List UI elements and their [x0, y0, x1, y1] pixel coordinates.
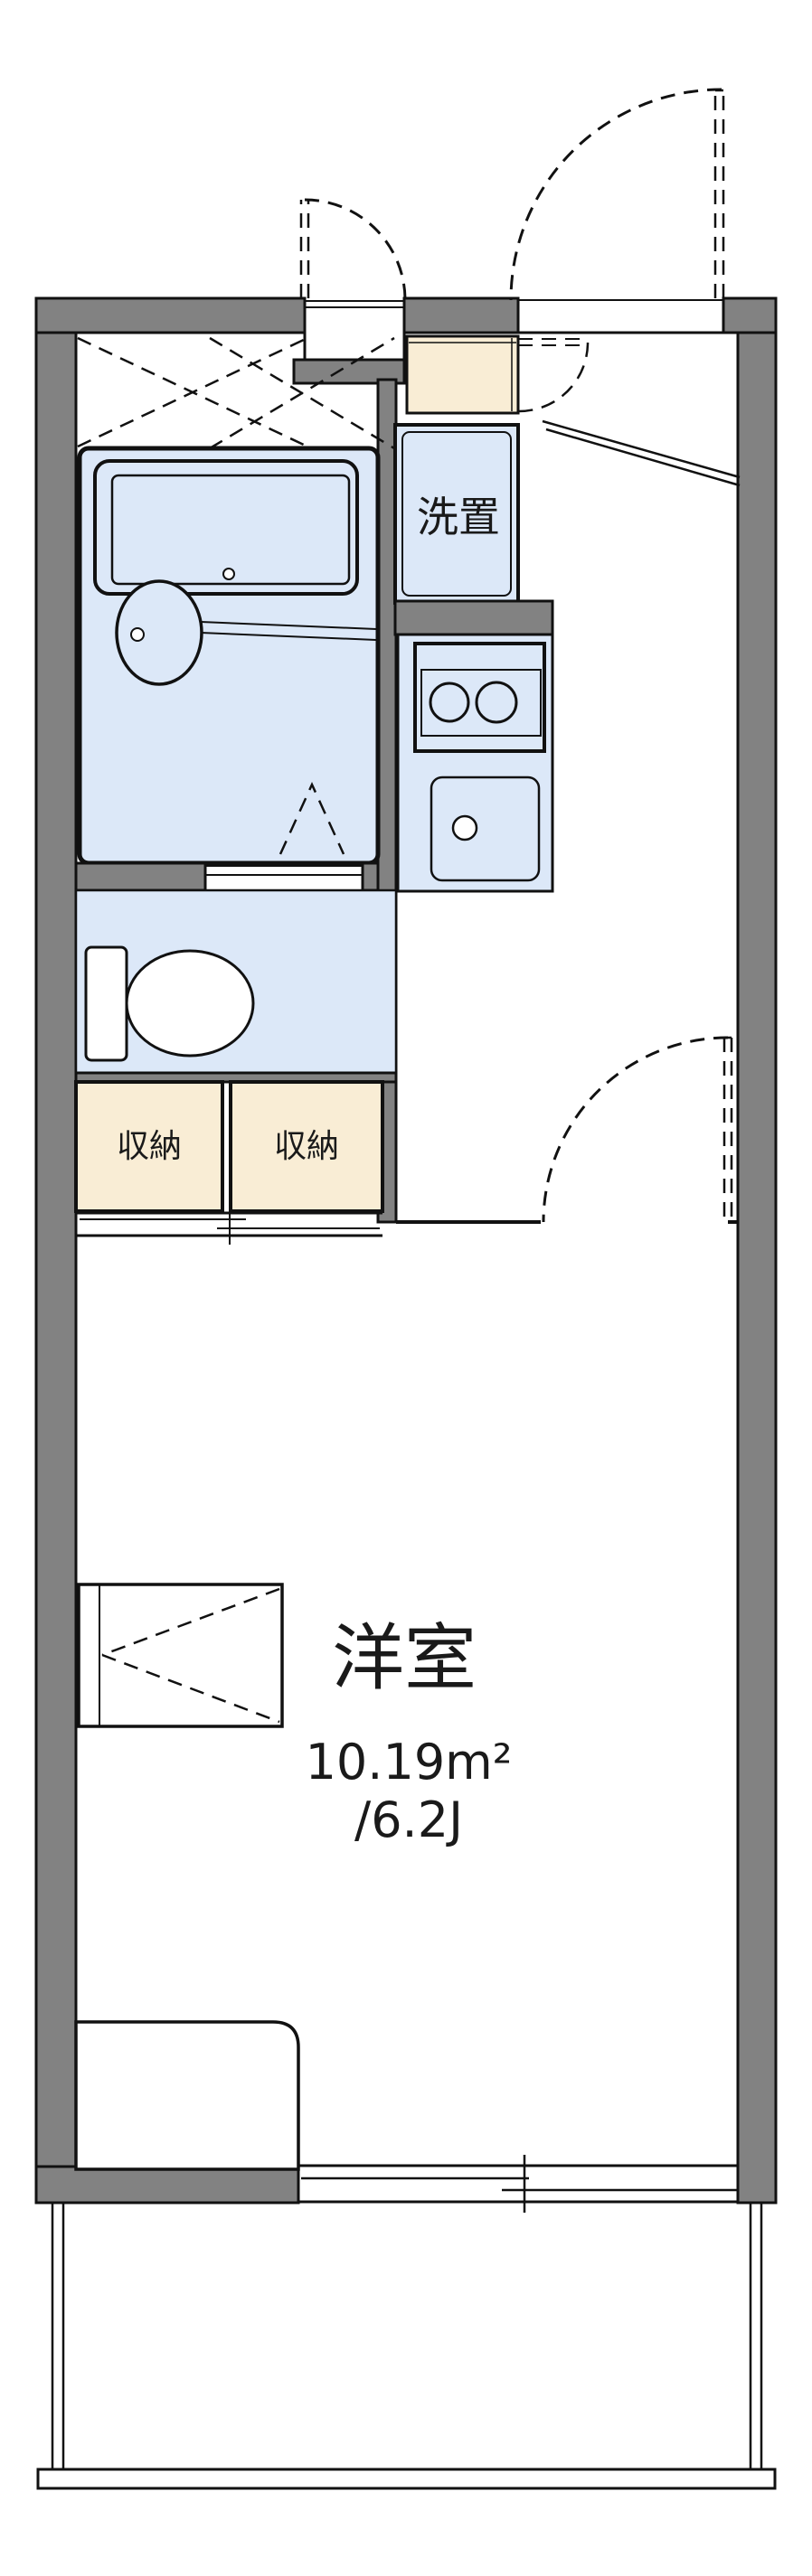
toilet-bowl — [127, 951, 253, 1056]
wash-basin — [117, 581, 202, 684]
folding-bed — [79, 1584, 282, 1726]
alcove-door-arc — [305, 200, 405, 300]
bathroom-bottom-wall-right — [363, 863, 378, 890]
room-area-m2-label: 10.19m² — [306, 1734, 513, 1791]
wall-left — [36, 298, 76, 2203]
corner-counter — [76, 2022, 298, 2169]
room-area-tatami-label: /6.2J — [354, 1791, 463, 1848]
wall-top-right-corner — [723, 298, 776, 333]
basin-faucet-icon — [131, 628, 144, 641]
room-name-label: 洋室 — [332, 1616, 477, 1700]
storage-right-label: 収納 — [274, 1128, 339, 1165]
sink-drain-icon — [453, 816, 477, 840]
room-door-arc — [543, 1038, 728, 1222]
wall-bottom-segment — [36, 2167, 298, 2203]
floor-plan: 洗置 収納 収納 洋室 10.19m² /6.2J — [0, 0, 812, 2576]
kitchen-sink — [431, 777, 539, 880]
wall-right — [738, 298, 776, 2203]
entrance-door-arc — [511, 89, 722, 300]
cabinet-door-arc — [519, 343, 588, 411]
bathtub-inner — [112, 475, 349, 584]
storage-left-label: 収納 — [117, 1128, 182, 1165]
wall-top-mid-segment — [404, 298, 518, 333]
bathtub-drain-icon — [223, 569, 234, 579]
wall-top-left-segment — [36, 298, 305, 333]
burner-right-icon — [477, 682, 516, 722]
balcony-railing — [38, 2469, 775, 2488]
entrance-step-line2 — [546, 429, 740, 485]
washer-label: 洗置 — [417, 493, 500, 541]
toilet-tank — [86, 947, 127, 1060]
kitchen-top-stub-wall — [395, 601, 552, 635]
entrance-step-line1 — [543, 421, 740, 477]
bathroom-bottom-wall-left — [76, 863, 205, 890]
floor-plan-canvas: 洗置 収納 収納 洋室 10.19m² /6.2J — [0, 0, 812, 2576]
burner-left-icon — [430, 683, 468, 721]
shoe-cabinet — [407, 336, 518, 413]
